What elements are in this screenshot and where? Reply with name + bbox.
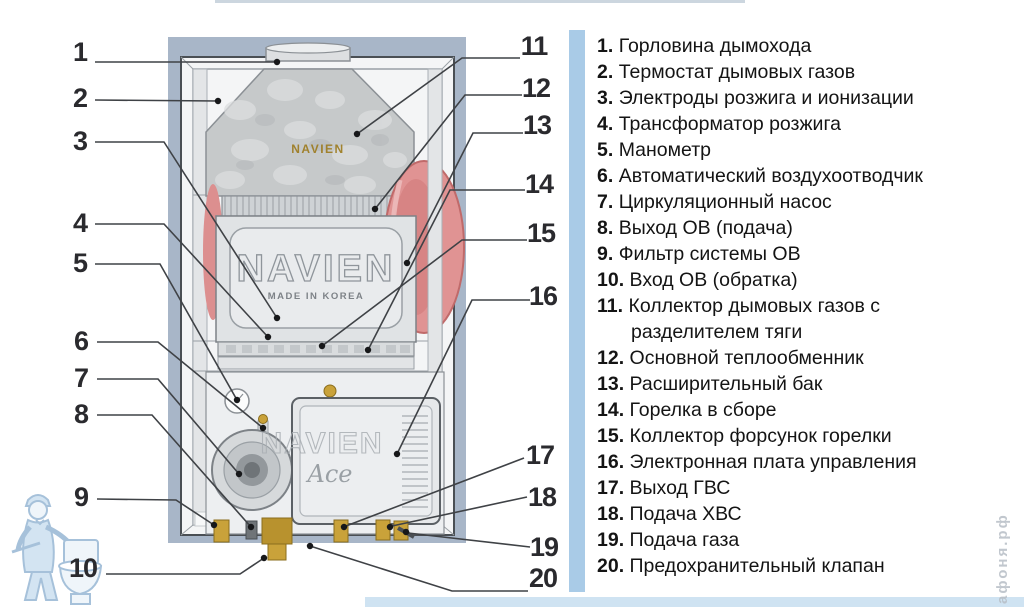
made-in-korea-text: MADE IN KOREA: [268, 291, 365, 302]
legend-item-11: 11. Коллектор дымовых газов с разделител…: [597, 293, 989, 345]
legend-num: 1.: [597, 35, 613, 57]
legend-text: Коллектор форсунок горелки: [630, 425, 892, 447]
legend-text: Подача газа: [630, 529, 740, 551]
legend-text: Трансформатор розжига: [619, 113, 841, 135]
legend-item-9: 9. Фильтр системы ОВ: [597, 241, 989, 267]
callout-6: 6: [59, 327, 103, 355]
legend-item-20: 20. Предохранительный клапан: [597, 553, 989, 579]
legend-item-15: 15. Коллектор форсунок горелки: [597, 423, 989, 449]
legend-text: Фильтр системы ОВ: [619, 243, 801, 265]
legend-item-10: 10. Вход ОВ (обратка): [597, 267, 989, 293]
burner-assembly: [218, 342, 414, 369]
callout-3: 3: [58, 127, 102, 155]
callout-19: 19: [522, 533, 566, 561]
legend-text: Манометр: [619, 139, 711, 161]
legend-divider-bar: [569, 30, 585, 592]
legend-num: 6.: [597, 165, 613, 187]
legend-item-7: 7. Циркуляционный насос: [597, 189, 989, 215]
brand-text-chamber: NAVIEN: [237, 248, 396, 290]
site-watermark-text: афоня.рф: [994, 428, 1020, 604]
legend-text: Подача ХВС: [630, 503, 742, 525]
legend-num: 17.: [597, 477, 624, 499]
legend-item-2: 2. Термостат дымовых газов: [597, 59, 989, 85]
callout-5: 5: [58, 249, 102, 277]
legend-num: 10.: [597, 269, 624, 291]
legend-text: Выход ОВ (подача): [619, 217, 793, 239]
legend-item-18: 18. Подача ХВС: [597, 501, 989, 527]
legend-text: Автоматический воздухоотводчик: [619, 165, 923, 187]
legend-text: Выход ГВС: [630, 477, 731, 499]
legend-text: Термостат дымовых газов: [619, 61, 855, 83]
callout-2: 2: [58, 84, 102, 112]
legend-item-8: 8. Выход ОВ (подача): [597, 215, 989, 241]
legend-num: 13.: [597, 373, 624, 395]
model-script-text: Ace: [306, 460, 353, 488]
legend-num: 14.: [597, 399, 624, 421]
callout-1: 1: [58, 38, 102, 66]
callout-7: 7: [59, 364, 103, 392]
boiler-infographic: NAVIEN NAVIEN MADE IN KOREA: [0, 0, 1024, 607]
legend-num: 19.: [597, 529, 624, 551]
callout-10: 10: [61, 554, 105, 582]
legend-text: Электроды розжига и ионизации: [619, 87, 914, 109]
legend-item-4: 4. Трансформатор розжига: [597, 111, 989, 137]
callout-18: 18: [520, 483, 564, 511]
parts-legend: 1. Горловина дымохода 2. Термостат дымов…: [597, 33, 989, 579]
flue-collar: [266, 43, 350, 61]
brand-text-hood: NAVIEN: [291, 142, 344, 156]
legend-text: Основной теплообменник: [630, 347, 864, 369]
legend-item-3: 3. Электроды розжига и ионизации: [597, 85, 989, 111]
brand-text-panel: NAVIEN: [260, 427, 383, 460]
legend-text: Электронная плата управления: [630, 451, 917, 473]
legend-item-16: 16. Электронная плата управления: [597, 449, 989, 475]
legend-text: Предохранительный клапан: [630, 555, 885, 577]
legend-item-5: 5. Манометр: [597, 137, 989, 163]
legend-num: 11.: [597, 295, 623, 317]
legend-text: Расширительный бак: [630, 373, 823, 395]
legend-item-13: 13. Расширительный бак: [597, 371, 989, 397]
legend-num: 5.: [597, 139, 613, 161]
callout-16: 16: [521, 282, 565, 310]
legend-text: Циркуляционный насос: [619, 191, 832, 213]
legend-num: 9.: [597, 243, 613, 265]
legend-text: Горловина дымохода: [619, 35, 812, 57]
combustion-chamber: NAVIEN MADE IN KOREA: [216, 216, 416, 342]
callout-11: 11: [512, 32, 556, 60]
legend-num: 4.: [597, 113, 613, 135]
legend-num: 15.: [597, 425, 624, 447]
legend-text: Коллектор дымовых газов с разделителем т…: [628, 295, 880, 343]
callout-15: 15: [519, 219, 563, 247]
callout-14: 14: [517, 170, 561, 198]
callout-17: 17: [518, 441, 562, 469]
legend-item-19: 19. Подача газа: [597, 527, 989, 553]
legend-num: 18.: [597, 503, 624, 525]
legend-num: 16.: [597, 451, 624, 473]
legend-num: 2.: [597, 61, 613, 83]
legend-num: 7.: [597, 191, 613, 213]
legend-item-12: 12. Основной теплообменник: [597, 345, 989, 371]
legend-num: 3.: [597, 87, 613, 109]
legend-item-14: 14. Горелка в сборе: [597, 397, 989, 423]
legend-item-1: 1. Горловина дымохода: [597, 33, 989, 59]
callout-9: 9: [59, 483, 103, 511]
bottom-accent-bar: [365, 597, 1024, 607]
legend-num: 20.: [597, 555, 624, 577]
legend-num: 12.: [597, 347, 624, 369]
callout-13: 13: [515, 111, 559, 139]
callout-4: 4: [58, 209, 102, 237]
legend-num: 8.: [597, 217, 613, 239]
legend-item-6: 6. Автоматический воздухоотводчик: [597, 163, 989, 189]
heat-exchanger: [222, 196, 414, 216]
legend-item-17: 17. Выход ГВС: [597, 475, 989, 501]
callout-20: 20: [521, 564, 565, 592]
callout-8: 8: [59, 400, 103, 428]
legend-text: Горелка в сборе: [630, 399, 777, 421]
legend-text: Вход ОВ (обратка): [630, 269, 798, 291]
callout-12: 12: [514, 74, 558, 102]
